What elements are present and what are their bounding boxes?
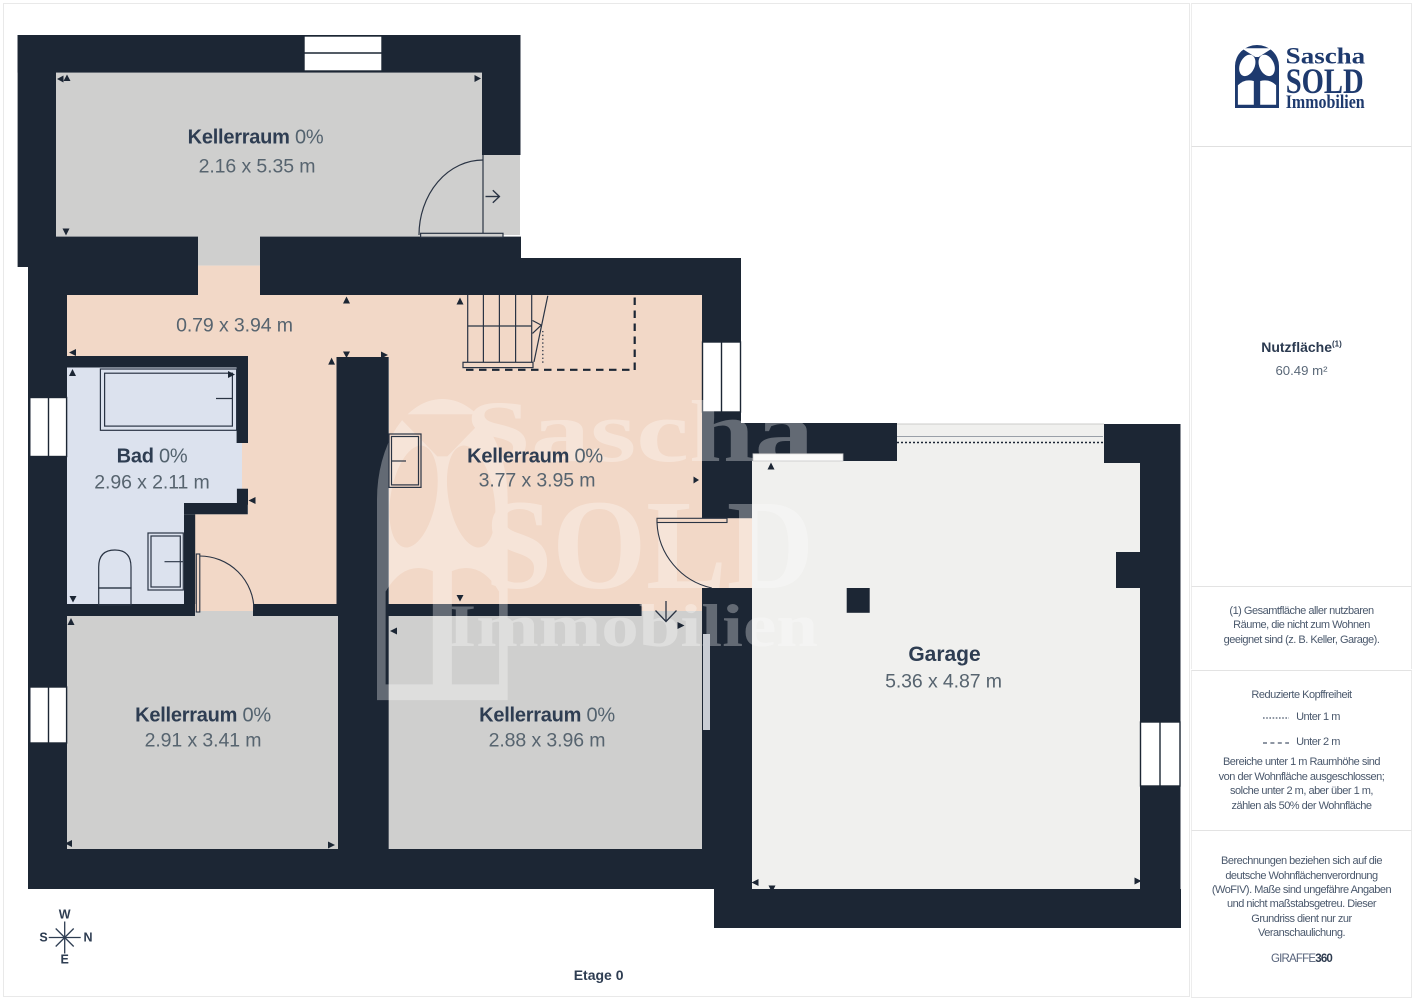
svg-text:Etage 0: Etage 0 [574,967,624,983]
svg-text:Immobilien: Immobilien [1286,93,1366,113]
svg-text:Immobilien: Immobilien [447,593,818,659]
svg-text:E: E [61,953,69,967]
svg-text:W: W [59,908,71,922]
svg-text:S: S [39,931,47,945]
svg-text:N: N [83,931,92,945]
